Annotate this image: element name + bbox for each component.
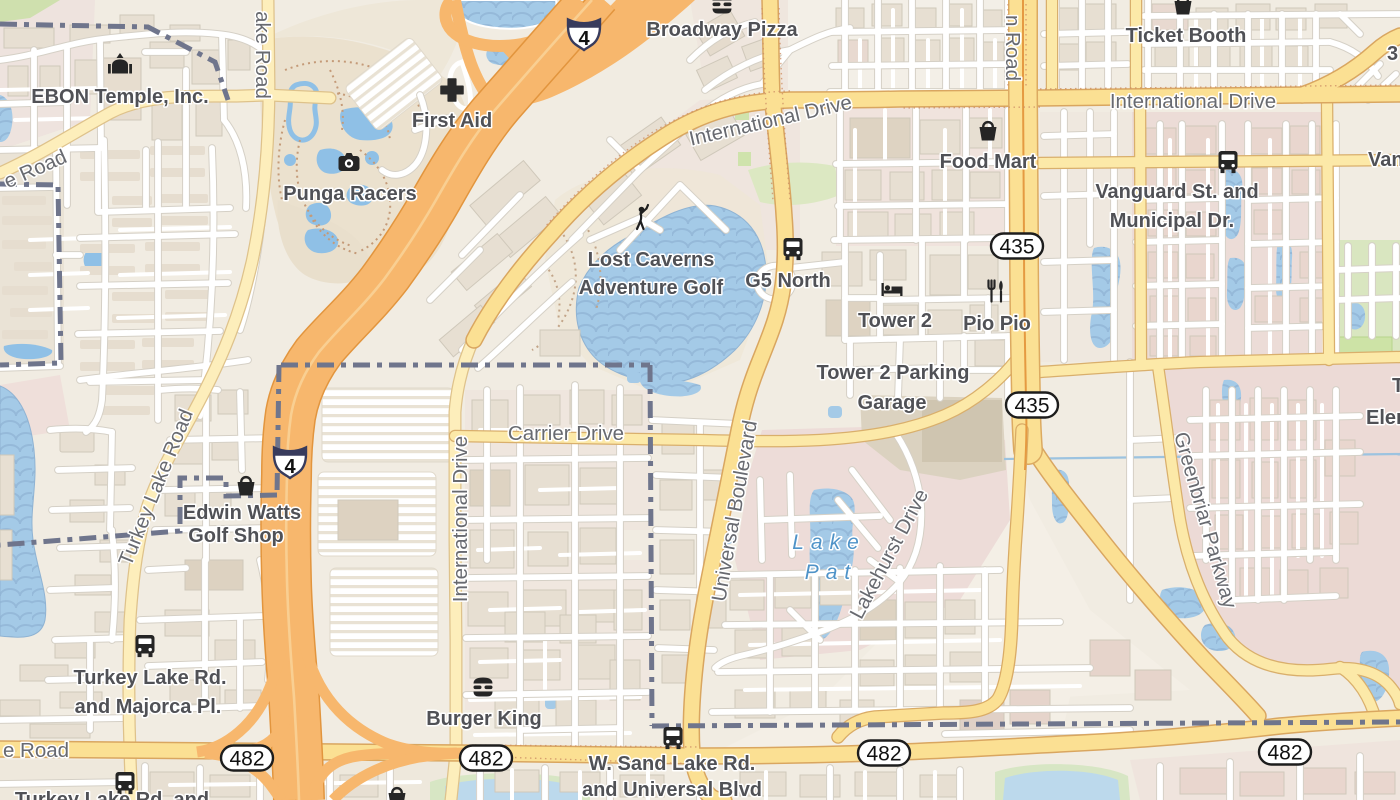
svg-text:Tower 2 Parking: Tower 2 Parking — [816, 362, 969, 384]
svg-text:and Majorca Pl.: and Majorca Pl. — [75, 696, 222, 718]
svg-text:Ticket Booth: Ticket Booth — [1126, 25, 1247, 47]
svg-text:Golf Shop: Golf Shop — [188, 525, 284, 547]
svg-text:First Aid: First Aid — [412, 110, 492, 132]
svg-text:Carrier Drive: Carrier Drive — [508, 422, 624, 445]
svg-text:ake Road: ake Road — [251, 11, 274, 99]
svg-text:Broadway Pizza: Broadway Pizza — [646, 19, 798, 41]
svg-text:Turkey Lake Rd.: Turkey Lake Rd. — [73, 667, 226, 689]
svg-text:and Universal Blvd: and Universal Blvd — [582, 779, 762, 800]
svg-text:W. Sand Lake Rd.: W. Sand Lake Rd. — [589, 753, 756, 775]
svg-text:Punga Racers: Punga Racers — [283, 183, 416, 205]
svg-text:Pat: Pat — [805, 561, 858, 584]
svg-text:Adventure Golf: Adventure Golf — [579, 277, 724, 299]
svg-text:Vang: Vang — [1368, 149, 1400, 171]
svg-text:Ta: Ta — [1392, 375, 1400, 397]
svg-text:Eleme: Eleme — [1366, 407, 1400, 429]
svg-text:G5 North: G5 North — [745, 270, 831, 292]
svg-text:Municipal Dr.: Municipal Dr. — [1110, 210, 1234, 232]
svg-text:International Drive: International Drive — [1110, 90, 1276, 113]
svg-text:Burger King: Burger King — [426, 708, 542, 730]
svg-text:3 m: 3 m — [1387, 43, 1400, 65]
svg-text:Food Mart: Food Mart — [940, 151, 1037, 173]
svg-text:EBON Temple, Inc.: EBON Temple, Inc. — [31, 86, 208, 108]
svg-text:Lake: Lake — [792, 531, 866, 554]
svg-text:Garage: Garage — [858, 392, 927, 414]
svg-text:Lost Caverns: Lost Caverns — [588, 249, 715, 271]
svg-text:n Road: n Road — [1001, 15, 1024, 81]
svg-text:Turkey Lake Rd. and: Turkey Lake Rd. and — [15, 789, 209, 800]
svg-text:Tower 2: Tower 2 — [858, 310, 932, 332]
svg-text:e Road: e Road — [3, 739, 69, 762]
svg-text:Pio Pio: Pio Pio — [963, 313, 1031, 335]
svg-text:Vanguard St. and: Vanguard St. and — [1095, 181, 1258, 203]
svg-text:Edwin Watts: Edwin Watts — [183, 502, 301, 524]
svg-text:International Drive: International Drive — [449, 436, 472, 602]
